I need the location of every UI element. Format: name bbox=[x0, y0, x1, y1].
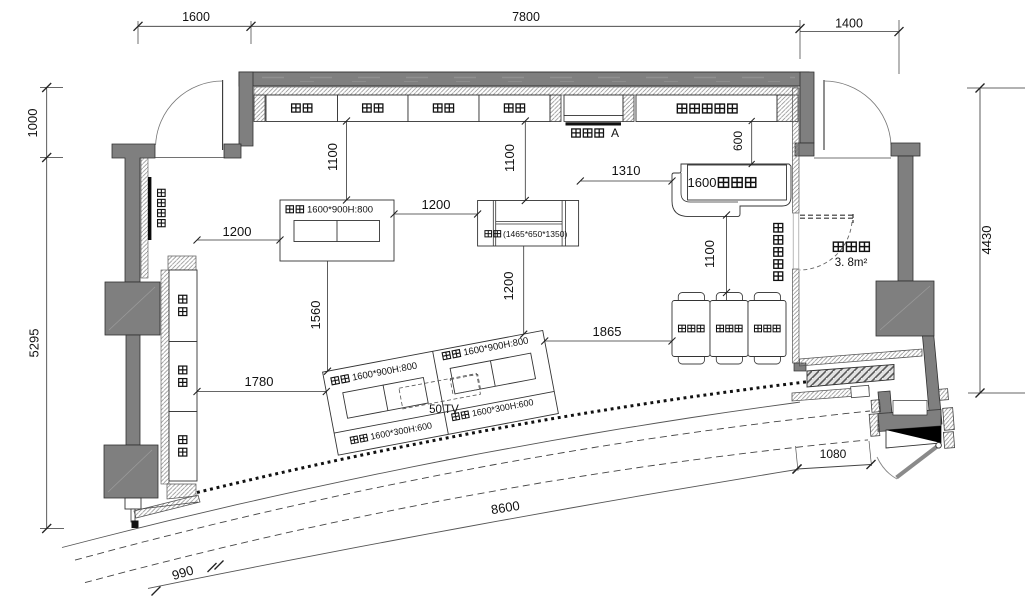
svg-text:1600*900H:800: 1600*900H:800 bbox=[307, 205, 373, 216]
svg-text:1560: 1560 bbox=[308, 301, 323, 330]
svg-text:600: 600 bbox=[731, 131, 745, 151]
svg-text:1400: 1400 bbox=[835, 17, 863, 31]
svg-text:1780: 1780 bbox=[245, 374, 274, 389]
svg-text:1000: 1000 bbox=[25, 109, 40, 138]
svg-text:1600: 1600 bbox=[182, 10, 210, 24]
svg-text:5295: 5295 bbox=[27, 329, 42, 358]
svg-text:1080: 1080 bbox=[820, 447, 847, 461]
svg-text:(1465*650*1350): (1465*650*1350) bbox=[503, 229, 567, 239]
svg-text:1100: 1100 bbox=[325, 143, 340, 171]
svg-text:1100: 1100 bbox=[702, 240, 717, 268]
svg-text:4430: 4430 bbox=[979, 226, 994, 255]
svg-text:1200: 1200 bbox=[501, 272, 516, 301]
svg-text:1310: 1310 bbox=[612, 163, 641, 178]
svg-text:50'TV: 50'TV bbox=[429, 404, 459, 416]
svg-text:1600: 1600 bbox=[688, 175, 717, 190]
svg-text:1200: 1200 bbox=[223, 224, 252, 239]
svg-text:1865: 1865 bbox=[593, 324, 622, 339]
svg-text:A: A bbox=[611, 126, 619, 140]
svg-text:1200: 1200 bbox=[422, 197, 451, 212]
svg-text:1100: 1100 bbox=[502, 144, 517, 172]
svg-text:7800: 7800 bbox=[512, 10, 540, 24]
svg-text:3. 8m²: 3. 8m² bbox=[835, 257, 868, 269]
